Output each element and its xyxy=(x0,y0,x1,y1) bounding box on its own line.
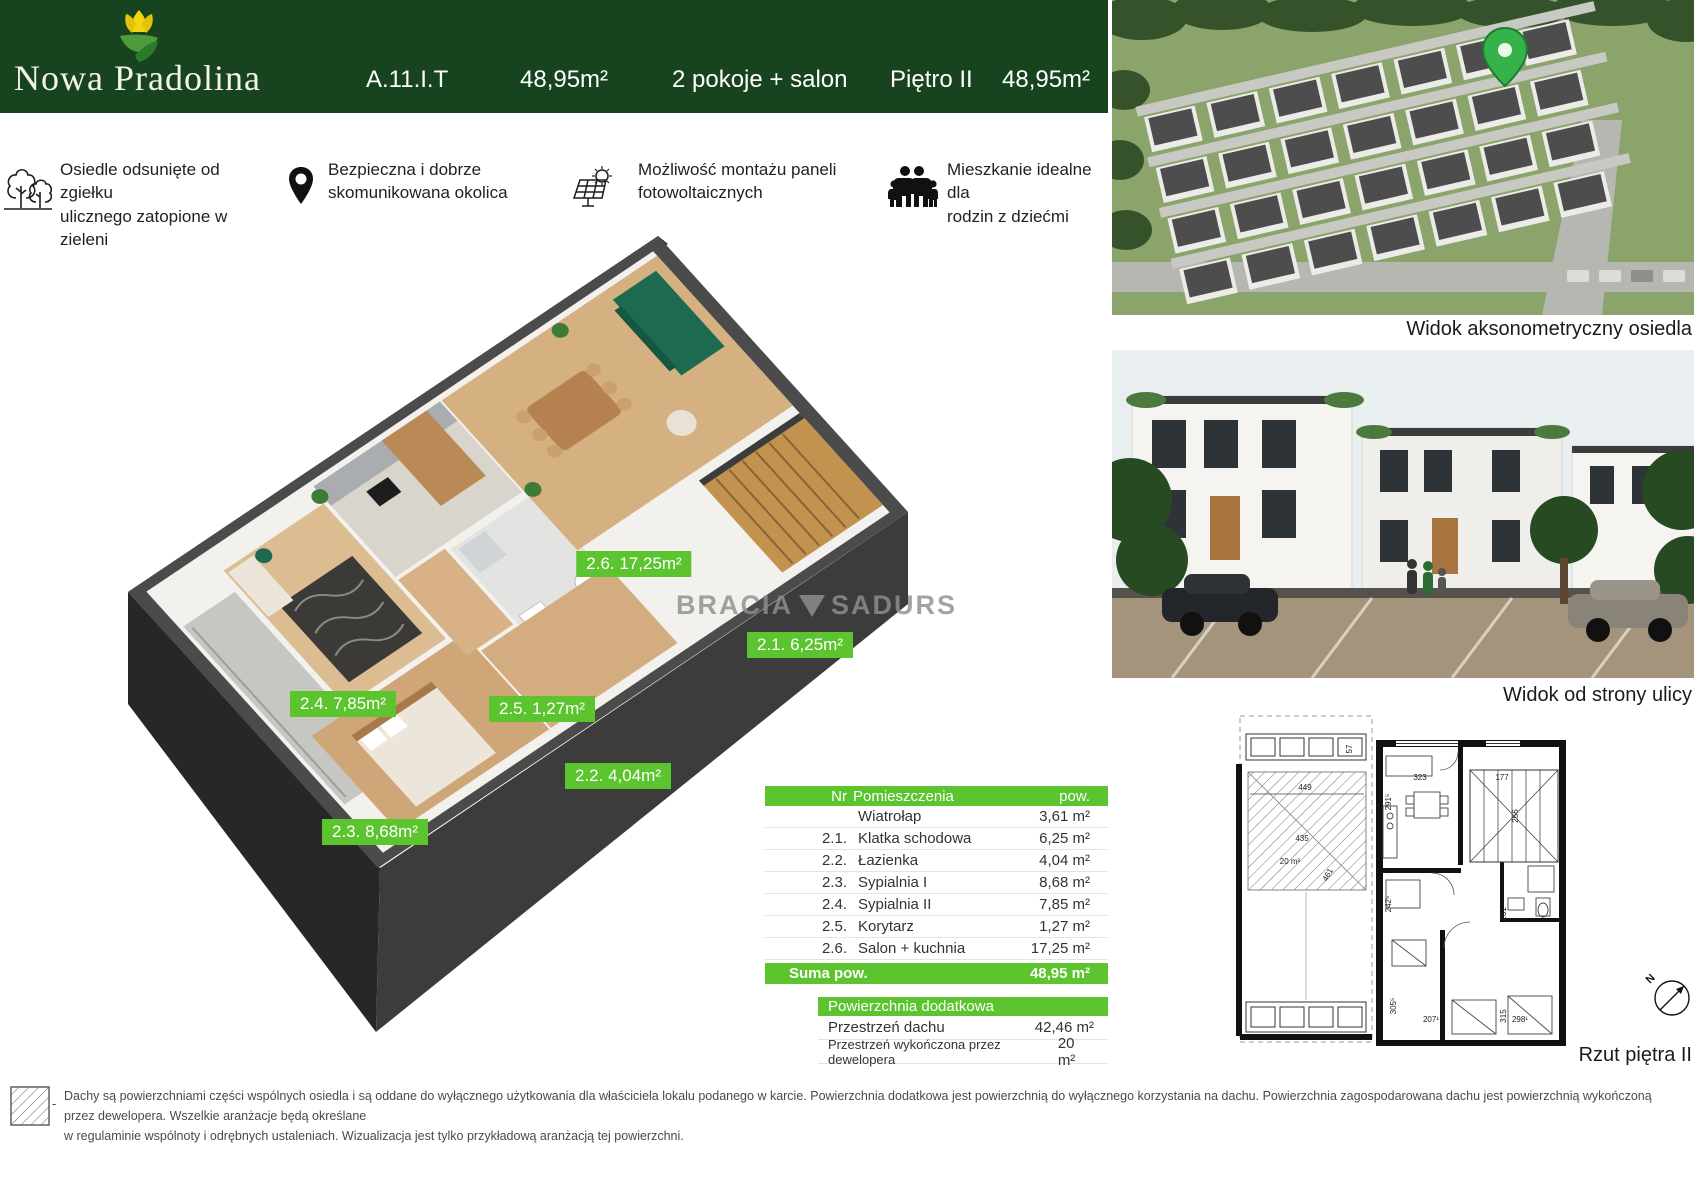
row-nr: 2.1. xyxy=(765,830,853,847)
row-area: 6,25 m² xyxy=(988,830,1108,847)
row-name: Łazienka xyxy=(853,852,988,869)
room-label-2-5: 2.5. 1,27m² xyxy=(489,696,595,722)
room-label-2-1: 2.1. 6,25m² xyxy=(747,632,853,658)
compass-icon: N xyxy=(1644,972,1689,1015)
row-area: 1,27 m² xyxy=(988,918,1108,935)
sum-row: Suma pow. 48,95 m² xyxy=(765,963,1108,984)
row-name: Sypialnia II xyxy=(853,896,988,913)
table-row: Przestrzeń wykończona przez dewelopera 2… xyxy=(818,1040,1108,1064)
row-area: 17,25 m² xyxy=(988,940,1108,957)
row-nr: 2.5. xyxy=(765,918,853,935)
row-area: 7,85 m² xyxy=(988,896,1108,913)
dim-315: 315 xyxy=(1499,1009,1508,1023)
additional-table-header: Powierzchnia dodatkowa xyxy=(818,997,1108,1016)
col-header-nr: Nr xyxy=(765,788,853,805)
dim-256: 256 xyxy=(1511,809,1520,823)
sum-value: 48,95 m² xyxy=(1030,965,1090,982)
sadurs-logo-icon xyxy=(799,595,825,617)
dim-177: 177 xyxy=(1495,773,1509,782)
dim-2425: 242⁵ xyxy=(1384,896,1393,913)
col-header-name: Pomieszczenia xyxy=(853,788,988,805)
watermark: BRACIA SADURS xyxy=(676,590,957,621)
row-name: Klatka schodowa xyxy=(853,830,988,847)
table-row: Wiatrołap 3,61 m² xyxy=(765,806,1108,828)
dim-3055: 305⁵ xyxy=(1389,998,1398,1015)
dim-20m2: 20 m² xyxy=(1280,857,1301,866)
col-header-area: pow. xyxy=(988,788,1108,805)
row-area: 3,61 m² xyxy=(988,808,1108,825)
row-name: Salon + kuchnia xyxy=(853,940,988,957)
row-name: Korytarz xyxy=(853,918,988,935)
row-name: Przestrzeń wykończona przez dewelopera xyxy=(828,1037,1058,1067)
dim-435: 435 xyxy=(1295,834,1309,843)
dim-323: 323 xyxy=(1413,773,1427,782)
table-row: 2.4. Sypialnia II 7,85 m² xyxy=(765,894,1108,916)
sum-label: Suma pow. xyxy=(789,965,868,982)
row-name: Wiatrołap xyxy=(853,808,988,825)
rooms-table: Nr Pomieszczenia pow. Wiatrołap 3,61 m² … xyxy=(765,786,1108,984)
room-label-2-4: 2.4. 7,85m² xyxy=(290,691,396,717)
row-name: Sypialnia I xyxy=(853,874,988,891)
dim-2071: 207¹ xyxy=(1423,1015,1439,1024)
row-value: 20 m² xyxy=(1058,1035,1094,1069)
compass-n-label: N xyxy=(1644,972,1658,986)
dim-57: 57 xyxy=(1345,744,1354,753)
dim-449: 449 xyxy=(1298,783,1312,792)
watermark-text-right: SADURS xyxy=(831,590,957,621)
row-name: Przestrzeń dachu xyxy=(828,1019,945,1036)
row-nr: 2.2. xyxy=(765,852,853,869)
row-area: 8,68 m² xyxy=(988,874,1108,891)
table-row: 2.2. Łazienka 4,04 m² xyxy=(765,850,1108,872)
row-nr: 2.6. xyxy=(765,940,853,957)
row-area: 4,04 m² xyxy=(988,852,1108,869)
row-nr: 2.3. xyxy=(765,874,853,891)
table-row: 2.5. Korytarz 1,27 m² xyxy=(765,916,1108,938)
dim-2981: 298¹ xyxy=(1512,1015,1528,1024)
room-label-2-2: 2.2. 4,04m² xyxy=(565,763,671,789)
dim-2915: 291⁵ xyxy=(1384,794,1393,811)
row-value: 42,46 m² xyxy=(1035,1019,1094,1036)
watermark-text-left: BRACIA xyxy=(676,590,793,621)
additional-area-table: Powierzchnia dodatkowa Przestrzeń dachu … xyxy=(818,997,1108,1064)
room-label-2-6: 2.6. 17,25m² xyxy=(576,551,691,577)
dim-231: 231 xyxy=(1499,907,1508,921)
row-nr: 2.4. xyxy=(765,896,853,913)
table-row: 2.3. Sypialnia I 8,68 m² xyxy=(765,872,1108,894)
table-row: 2.6. Salon + kuchnia 17,25 m² xyxy=(765,938,1108,960)
rooms-table-header: Nr Pomieszczenia pow. xyxy=(765,786,1108,806)
room-label-2-3: 2.3. 8,68m² xyxy=(322,819,428,845)
table-row: 2.1. Klatka schodowa 6,25 m² xyxy=(765,828,1108,850)
